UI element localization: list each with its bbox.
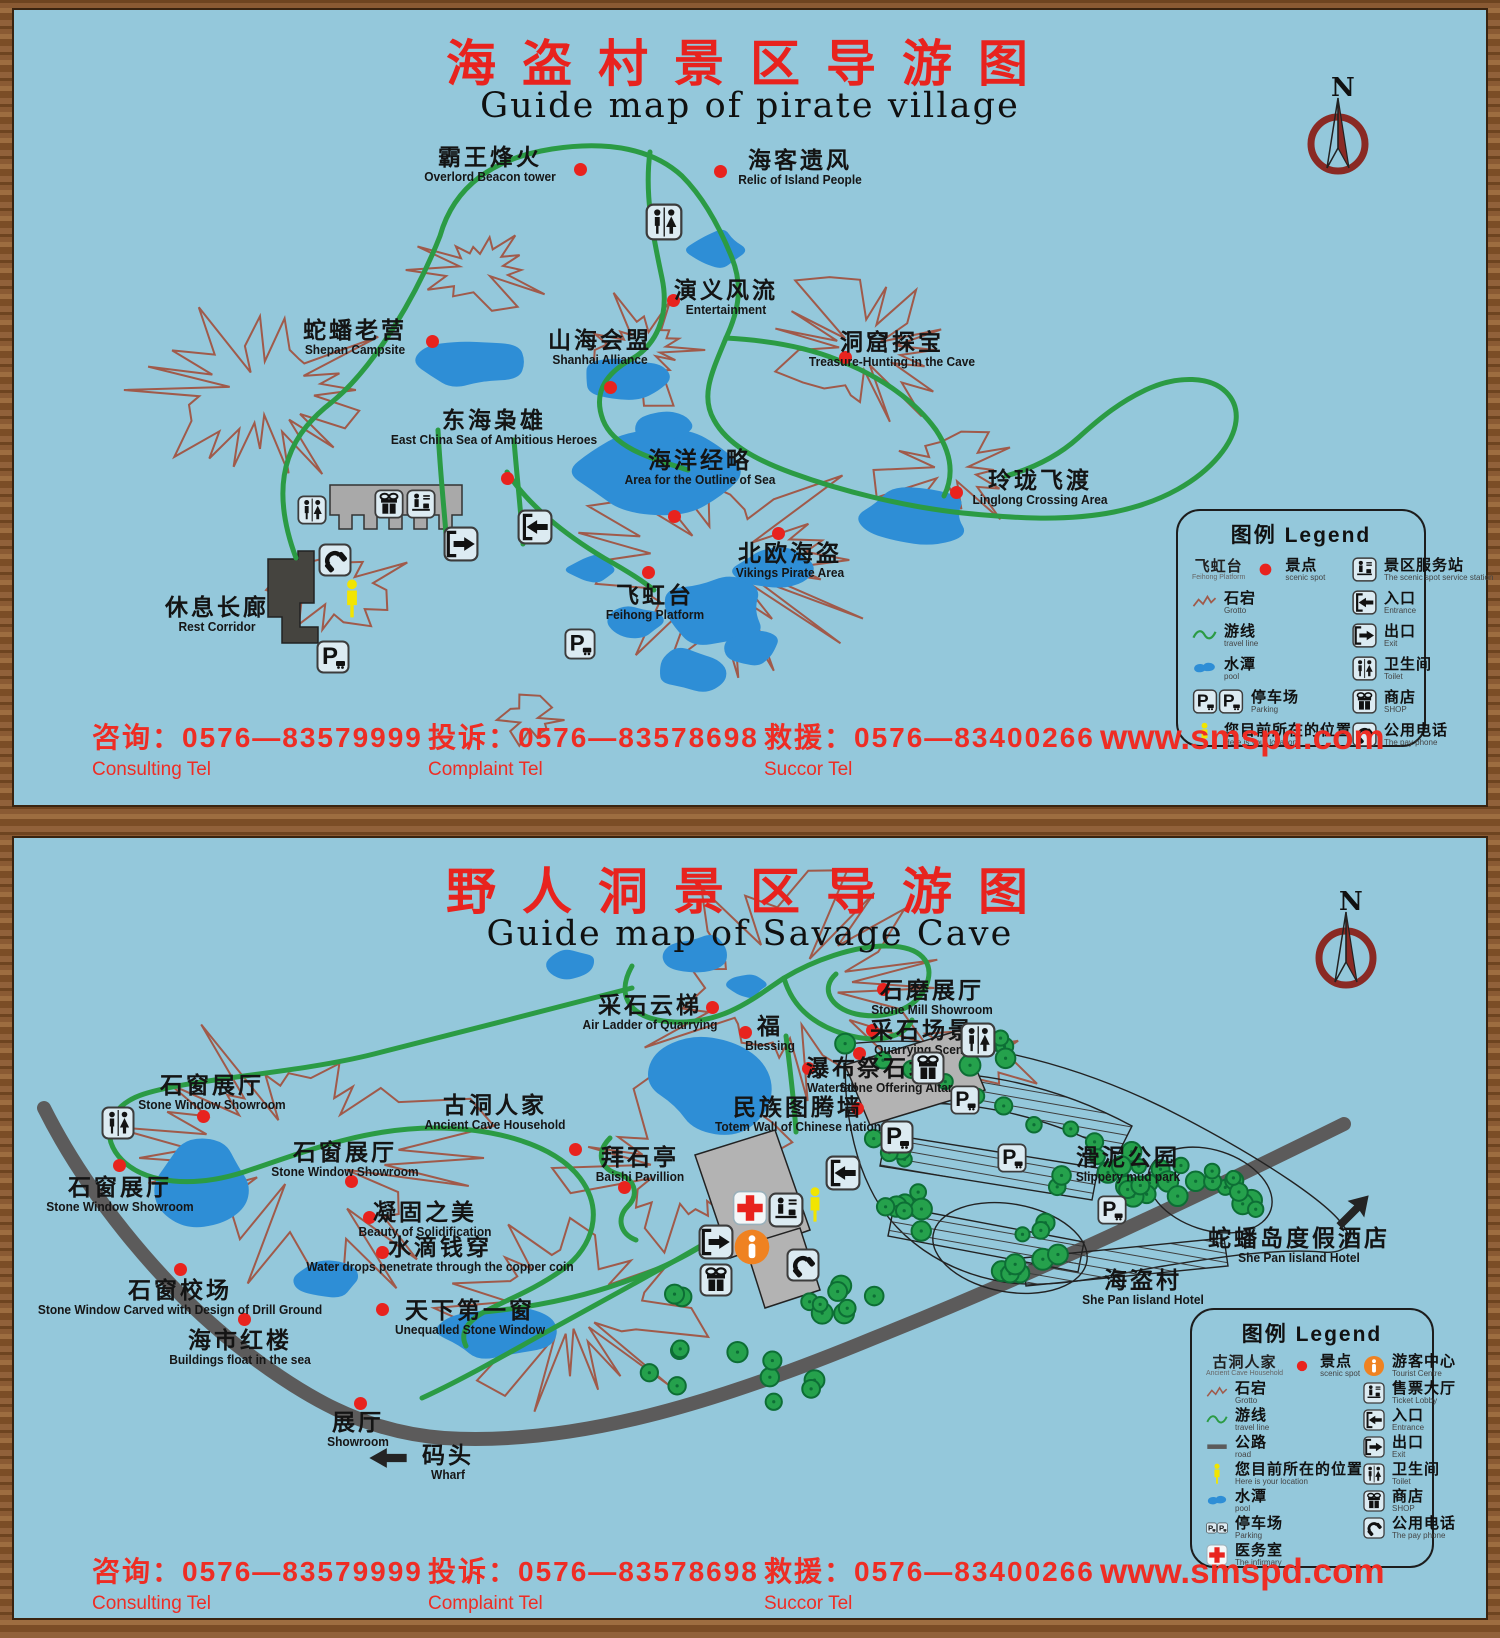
parking-icon: P — [997, 1143, 1027, 1173]
spot-label: 滑泥公园Slippery mud park — [1071, 1145, 1184, 1184]
svg-text:P: P — [1197, 691, 1209, 711]
legend-row: 公用电话The pay phone — [1363, 1514, 1456, 1541]
legend-label: 游客中心Tourist Centre — [1392, 1354, 1456, 1378]
legend-label: 石宕Grotto — [1224, 591, 1256, 615]
travel-line-icon — [1192, 623, 1217, 648]
spot-label: 霸王烽火Overlord Beacon tower — [418, 145, 561, 184]
spot-label: 石窗展厅Stone Window Showroom — [132, 1073, 292, 1112]
exit-icon — [443, 526, 479, 562]
svg-text:N: N — [1331, 73, 1355, 103]
legend-label: 石宕Grotto — [1235, 1381, 1267, 1405]
parking-icon: P — [316, 640, 350, 674]
succor-tel: 救援：0576—83400266Succor Tel — [764, 716, 1095, 781]
scenic-spot-dot — [376, 1303, 389, 1316]
spot-label: 北欧海盗Vikings Pirate Area — [731, 541, 849, 580]
entrance-icon — [825, 1155, 861, 1191]
spot-label: 石窗展厅Stone Window Showroom — [40, 1175, 200, 1214]
spot-label: 休息长廊Rest Corridor — [165, 595, 269, 634]
legend-row: 水潭pool — [1206, 1487, 1363, 1514]
grotto-line-icon — [1192, 590, 1217, 615]
spot-label: 玲珑飞渡Linglong Crossing Area — [967, 468, 1114, 507]
road-icon — [1206, 1436, 1228, 1458]
guide-map-poster: { "shared": { "compass_label": "N", "leg… — [0, 0, 1500, 1638]
legend-row: 入口Entrance — [1352, 586, 1493, 619]
tourist-centre-icon — [1363, 1355, 1385, 1377]
legend-row: 水潭pool — [1192, 652, 1352, 685]
spot-label: 石窗校场Stone Window Carved with Design of D… — [26, 1278, 335, 1317]
spot-label: 拜石亭Baishi Pavillion — [592, 1145, 688, 1184]
infirmary-icon — [732, 1190, 768, 1226]
legend-row: 商店SHOP — [1363, 1487, 1456, 1514]
parking-icon: P — [880, 1120, 914, 1154]
spot-label: 采石云梯Air Ladder of Quarrying — [577, 993, 724, 1032]
arrow-ne-icon — [1332, 1192, 1372, 1232]
shop-icon — [911, 1051, 945, 1085]
legend-box: 图例 Legend 飞虹台Feihong Platform景点scenic sp… — [1176, 509, 1426, 747]
spot-label: 海客遗风Relic of Island People — [733, 148, 867, 187]
legend-row: 售票大厅Ticket Lobby — [1363, 1379, 1456, 1406]
legend-row: 公路road — [1206, 1433, 1363, 1460]
spot-label: 演义风流Entertainment — [674, 278, 778, 317]
legend-label: 游线travel line — [1235, 1408, 1269, 1432]
scenic-spot-dot — [604, 381, 617, 394]
spot-label: 东海枭雄East China Sea of Ambitious Heroes — [382, 408, 606, 447]
scenic-spot-dot — [714, 165, 727, 178]
pirate-village-panel: 海盗村景区导游图 Guide map of pirate village N 霸… — [14, 10, 1486, 805]
scenic-spot-dot — [642, 566, 655, 579]
complaint-tel: 投诉：0576—83578698Complaint Tel — [428, 716, 759, 781]
scenic-spot-dot — [668, 510, 681, 523]
spot-label: 海洋经略Area for the Outline of Sea — [618, 448, 782, 487]
phone-icon — [1363, 1517, 1385, 1539]
legend-label: 出口Exit — [1384, 624, 1416, 648]
svg-text:P: P — [1223, 691, 1235, 711]
website-link: www.smspd.com — [1100, 1552, 1385, 1592]
toilet-icon — [1363, 1463, 1385, 1485]
toilet-icon — [297, 495, 327, 525]
legend-label: 售票大厅Ticket Lobby — [1392, 1381, 1456, 1405]
spot-label: 蛇蟠老营Shepan Campsite — [300, 318, 409, 357]
location-icon — [805, 1185, 825, 1225]
location-icon — [1206, 1463, 1228, 1485]
legend-row: 游线travel line — [1206, 1406, 1363, 1433]
website-link: www.smspd.com — [1100, 718, 1385, 758]
legend-label: 游线travel line — [1224, 624, 1258, 648]
exit-icon — [1352, 623, 1377, 648]
scenic-spot-dot — [950, 486, 963, 499]
legend-label: 商店SHOP — [1384, 690, 1416, 714]
legend-row: 景区服务站The scenic spot service station — [1352, 553, 1493, 586]
spot-label: 码头Wharf — [422, 1443, 474, 1482]
service-station-icon — [1352, 557, 1377, 582]
svg-text:P: P — [955, 1088, 969, 1111]
legend-row: PP停车场Parking — [1206, 1514, 1363, 1541]
spot-label: 石窗展厅Stone Window Showroom — [265, 1140, 425, 1179]
toilet-icon — [960, 1022, 996, 1058]
toilet-icon — [101, 1106, 135, 1140]
legend-title: 图例 Legend — [1192, 1318, 1432, 1348]
legend-row: 出口Exit — [1352, 619, 1493, 652]
pool-icon — [1192, 656, 1217, 681]
legend-label: 停车场Parking — [1235, 1516, 1283, 1540]
legend-row: 出口Exit — [1363, 1433, 1456, 1460]
parking-icon: PP — [1192, 689, 1244, 714]
legend-sample: 古洞人家Ancient Cave Household — [1206, 1355, 1283, 1377]
spot-label: 天下第一窗Unequalled Stone Window — [388, 1298, 551, 1337]
shop-icon — [374, 489, 404, 519]
legend-row: 卫生间Toilet — [1363, 1460, 1456, 1487]
phone-icon — [786, 1248, 820, 1282]
legend-row: 古洞人家Ancient Cave Household景点scenic spot — [1206, 1352, 1363, 1379]
legend-label: 景区服务站The scenic spot service station — [1384, 558, 1493, 582]
page-subtitle: Guide map of pirate village — [14, 86, 1486, 126]
exit-icon — [1363, 1436, 1385, 1458]
legend-row: PP停车场Parking — [1192, 685, 1352, 718]
svg-text:P: P — [570, 631, 585, 656]
legend-row: 卫生间Toilet — [1352, 652, 1493, 685]
shop-icon — [1363, 1490, 1385, 1512]
tourist-centre-icon — [733, 1228, 771, 1266]
rest-corridor-building — [268, 551, 318, 643]
spot-label: 海市红楼Buildings float in the sea — [163, 1328, 317, 1367]
service-station-icon — [406, 489, 436, 519]
legend-label: 景点scenic spot — [1285, 558, 1325, 582]
phone-icon — [318, 543, 352, 577]
legend-label: 公用电话The pay phone — [1384, 723, 1448, 747]
shop-icon — [1352, 689, 1377, 714]
legend-label: 公用电话The pay phone — [1392, 1516, 1456, 1540]
grotto-line-icon — [1206, 1382, 1228, 1404]
scenic-spot-dot — [569, 1143, 582, 1156]
savage-cave-panel: 野人洞景区导游图 Guide map of Savage Cave N 采石云梯… — [14, 838, 1486, 1618]
legend-row: 入口Entrance — [1363, 1406, 1456, 1433]
entrance-icon — [1363, 1409, 1385, 1431]
exit-icon — [698, 1224, 734, 1260]
svg-text:P: P — [886, 1123, 902, 1150]
legend-row: 商店SHOP — [1352, 685, 1493, 718]
legend-label: 水潭pool — [1235, 1489, 1267, 1513]
grotto-lines — [124, 235, 1010, 745]
svg-text:N: N — [1339, 887, 1363, 917]
spot-label: 展厅Showroom — [324, 1410, 391, 1449]
parking-icon: P — [1097, 1195, 1127, 1225]
legend-row: 飞虹台Feihong Platform景点scenic spot — [1192, 553, 1352, 586]
page-subtitle: Guide map of Savage Cave — [14, 914, 1486, 954]
parking-icon: P — [950, 1085, 980, 1115]
scenic-spot-dot — [354, 1397, 367, 1410]
legend-row: 您目前所在的位置Here is your location — [1206, 1460, 1363, 1487]
service-station-icon — [1363, 1382, 1385, 1404]
scenic-spot-dot — [574, 163, 587, 176]
entrance-icon — [1352, 590, 1377, 615]
toilet-icon — [645, 203, 683, 241]
toilet-icon — [1352, 656, 1377, 681]
parking-icon: PP — [1206, 1517, 1228, 1539]
spot-label: 山海会盟Shanhai Alliance — [548, 328, 652, 367]
legend-row: 石宕Grotto — [1206, 1379, 1363, 1406]
legend-label: 商店SHOP — [1392, 1489, 1424, 1513]
spot-label: 福Blessing — [743, 1014, 797, 1053]
legend-label: 卫生间Toilet — [1392, 1462, 1440, 1486]
legend-label: 景点scenic spot — [1320, 1354, 1360, 1378]
travel-line-icon — [1206, 1409, 1228, 1431]
legend-label: 卫生间Toilet — [1384, 657, 1432, 681]
legend-label: 入口Entrance — [1384, 591, 1416, 615]
legend-title: 图例 Legend — [1178, 519, 1424, 549]
compass-icon: N — [1302, 72, 1374, 190]
legend-box: 图例 Legend 古洞人家Ancient Cave Household景点sc… — [1190, 1308, 1434, 1568]
parking-icon: P — [564, 628, 596, 660]
complaint-tel: 投诉：0576—83578698Complaint Tel — [428, 1550, 759, 1615]
succor-tel: 救援：0576—83400266Succor Tel — [764, 1550, 1095, 1615]
legend-label: 您目前所在的位置Here is your location — [1235, 1462, 1363, 1486]
legend-label: 停车场Parking — [1251, 690, 1299, 714]
spot-label: 石磨展厅Stone Mill Showroom — [866, 978, 998, 1017]
consulting-tel: 咨询：0576—83579999Consulting Tel — [92, 716, 423, 781]
scenic-spot-icon — [1253, 557, 1278, 582]
consulting-tel: 咨询：0576—83579999Consulting Tel — [92, 1550, 423, 1615]
legend-label: 公路road — [1235, 1435, 1267, 1459]
scenic-spot-dot — [174, 1263, 187, 1276]
svg-text:P: P — [1002, 1146, 1016, 1169]
scenic-spot-dot — [426, 335, 439, 348]
legend-row: 游客中心Tourist Centre — [1363, 1352, 1456, 1379]
svg-text:P: P — [1208, 1523, 1213, 1532]
pool-icon — [1206, 1490, 1228, 1512]
svg-text:P: P — [1219, 1523, 1224, 1532]
spot-label: 水滴钱穿Water drops penetrate through the co… — [295, 1235, 586, 1274]
spot-label: 民族图腾墙Totem Wall of Chinese nation — [708, 1095, 889, 1134]
legend-row: 游线travel line — [1192, 619, 1352, 652]
legend-row: 石宕Grotto — [1192, 586, 1352, 619]
spot-label: 洞窟探宝Treasure-Hunting in the Cave — [802, 330, 983, 369]
legend-sample: 飞虹台Feihong Platform — [1192, 559, 1245, 581]
legend-label: 出口Exit — [1392, 1435, 1424, 1459]
shop-icon — [699, 1263, 733, 1297]
svg-text:P: P — [322, 643, 338, 670]
scenic-spot-icon — [1291, 1355, 1313, 1377]
service-station-icon — [768, 1192, 804, 1228]
legend-label: 入口Entrance — [1392, 1408, 1424, 1432]
svg-text:P: P — [1102, 1198, 1116, 1221]
spot-label: 飞虹台Feihong Platform — [602, 583, 709, 622]
spot-label: 海盗村She Pan Iisland Hotel — [1077, 1268, 1209, 1307]
entrance-icon — [517, 509, 553, 545]
compass-icon: N — [1310, 886, 1382, 1004]
spot-label: 古洞人家Ancient Cave Household — [418, 1093, 571, 1132]
scenic-spot-dot — [113, 1159, 126, 1172]
location-icon — [341, 578, 363, 620]
scenic-spot-dot — [501, 472, 514, 485]
scenic-spot-dot — [772, 527, 785, 540]
legend-label: 水潭pool — [1224, 657, 1256, 681]
arrow-left-icon — [367, 1445, 409, 1471]
